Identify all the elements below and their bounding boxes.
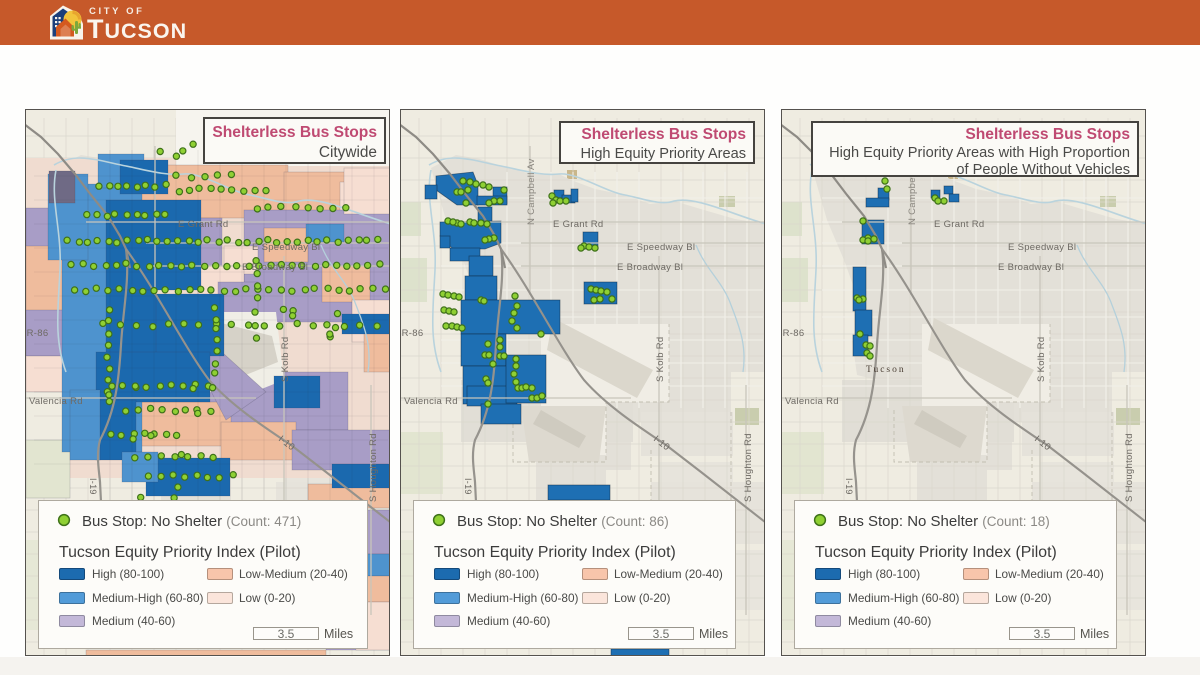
svg-text:E Speedway Bl: E Speedway Bl — [252, 242, 320, 253]
svg-text:SR-86: SR-86 — [26, 328, 48, 339]
svg-text:I-19: I-19 — [463, 478, 473, 495]
svg-text:S Houghton Rd: S Houghton Rd — [1124, 433, 1135, 502]
svg-text:E Grant Rd: E Grant Rd — [178, 219, 229, 230]
svg-text:S Kolb Rd: S Kolb Rd — [1036, 337, 1047, 382]
svg-text:E Grant Rd: E Grant Rd — [553, 219, 604, 230]
svg-text:I-19: I-19 — [844, 478, 854, 495]
svg-text:Tucson: Tucson — [866, 365, 906, 375]
svg-text:SR-86: SR-86 — [782, 328, 804, 339]
svg-text:S Houghton Rd: S Houghton Rd — [743, 433, 754, 502]
svg-text:S Houghton Rd: S Houghton Rd — [368, 433, 379, 502]
svg-text:S Kolb Rd: S Kolb Rd — [655, 337, 666, 382]
svg-text:S Kolb Rd: S Kolb Rd — [280, 337, 291, 382]
svg-text:E Broadway Bl: E Broadway Bl — [998, 262, 1064, 273]
svg-text:SR-86: SR-86 — [401, 328, 423, 339]
svg-text:Valencia Rd: Valencia Rd — [785, 396, 839, 407]
svg-text:E Speedway Bl: E Speedway Bl — [1008, 242, 1076, 253]
svg-text:E Grant Rd: E Grant Rd — [934, 219, 985, 230]
svg-text:N Campbell Av: N Campbell Av — [526, 158, 537, 225]
svg-text:E Broadway Bl: E Broadway Bl — [242, 262, 308, 273]
svg-text:Valencia Rd: Valencia Rd — [29, 396, 83, 407]
svg-text:Valencia Rd: Valencia Rd — [404, 396, 458, 407]
svg-text:E Broadway Bl: E Broadway Bl — [617, 262, 683, 273]
svg-text:I-19: I-19 — [88, 478, 98, 495]
svg-text:E Speedway Bl: E Speedway Bl — [627, 242, 695, 253]
